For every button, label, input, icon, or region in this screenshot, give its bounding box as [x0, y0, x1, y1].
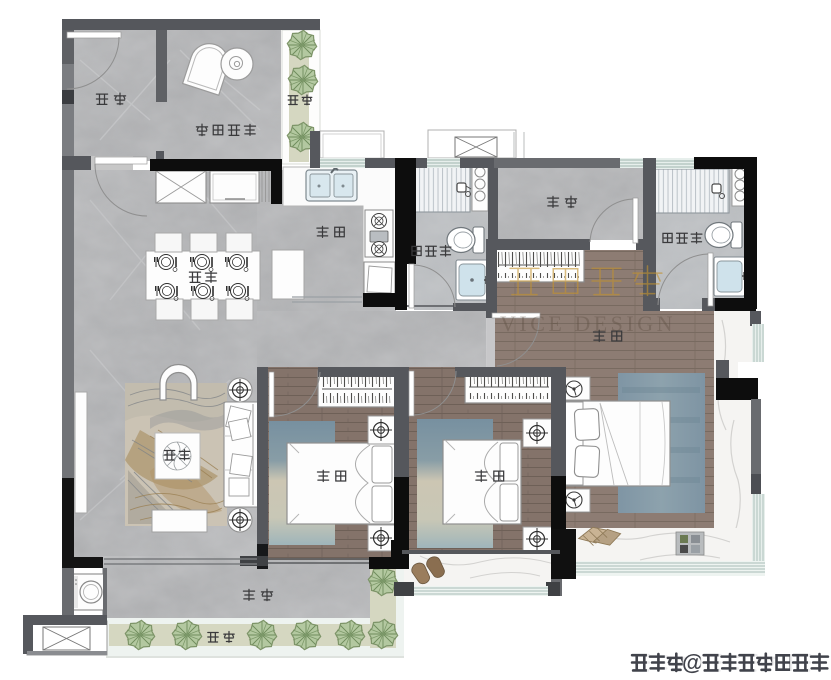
svg-text:@: @ [682, 650, 703, 675]
svg-text:VICE DESIGN: VICE DESIGN [500, 311, 676, 336]
